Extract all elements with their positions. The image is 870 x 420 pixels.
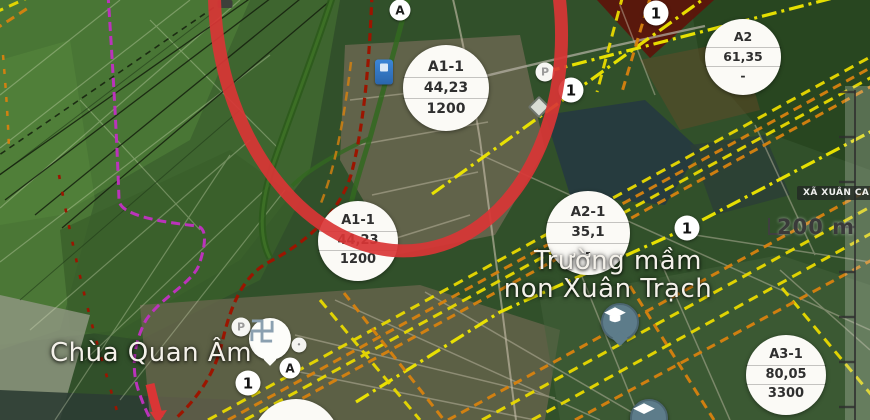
school-graduation-cap-icon[interactable] [601, 303, 639, 341]
plot-area: 80,05 [746, 365, 826, 385]
graduation-cap-glyph [603, 305, 627, 325]
satellite-planning-map[interactable]: A1-1 44,23 1200 A2 61,35 - A1-1 44,23 12… [0, 0, 870, 420]
plot-code: A1-1 [403, 57, 489, 77]
plot-area: 44,23 [318, 231, 398, 251]
commune-badge: XÃ XUÂN CA [797, 186, 870, 200]
temple-manji-icon[interactable] [249, 318, 291, 360]
route-marker-1-a[interactable]: 1 [644, 1, 669, 26]
route-marker-1-c[interactable]: 1 [675, 216, 700, 241]
pagoda-label: Chùa Quan Âm [50, 338, 252, 368]
plot-value: 3300 [746, 384, 826, 404]
plot-area: 44,23 [403, 77, 489, 98]
plot-area: 35,1 [546, 222, 630, 243]
plot-value: 1200 [318, 250, 398, 270]
graduation-cap-glyph [632, 401, 656, 420]
plot-label-a1-1-top: A1-1 44,23 1200 [403, 45, 489, 131]
manji-glyph [249, 318, 275, 344]
scale-text: 200 m [777, 215, 855, 239]
route-marker-1-b[interactable]: 1 [559, 78, 584, 103]
kindergarten-label-line1: Trường mầm [534, 246, 702, 276]
plot-area: 61,35 [705, 47, 781, 66]
plot-code: A1-1 [318, 212, 398, 231]
sign-glyph [380, 64, 388, 72]
route-marker-1-d[interactable]: 1 [236, 371, 261, 396]
waypoint-a-icon[interactable]: A [390, 0, 411, 21]
parking-icon[interactable]: P [232, 318, 251, 337]
plot-code: A3-1 [746, 346, 826, 365]
plot-value: 1200 [403, 98, 489, 119]
plot-value: - [705, 66, 781, 85]
plot-label-a2: A2 61,35 - [705, 19, 781, 95]
waypoint-a-icon[interactable]: A [280, 358, 301, 379]
plot-label-a1-1-mid: A1-1 44,23 1200 [318, 201, 398, 281]
small-poi-icon[interactable]: • [292, 338, 307, 353]
info-sign-icon[interactable] [375, 60, 393, 85]
plot-code: A2 [705, 28, 781, 46]
kindergarten-label-line2: non Xuân Trạch [504, 274, 713, 304]
small-poi-icon [218, 0, 233, 8]
plot-code: A2-1 [546, 203, 630, 223]
parking-icon[interactable]: P [536, 63, 555, 82]
plot-label-a3-1: A3-1 80,05 3300 [746, 335, 826, 415]
